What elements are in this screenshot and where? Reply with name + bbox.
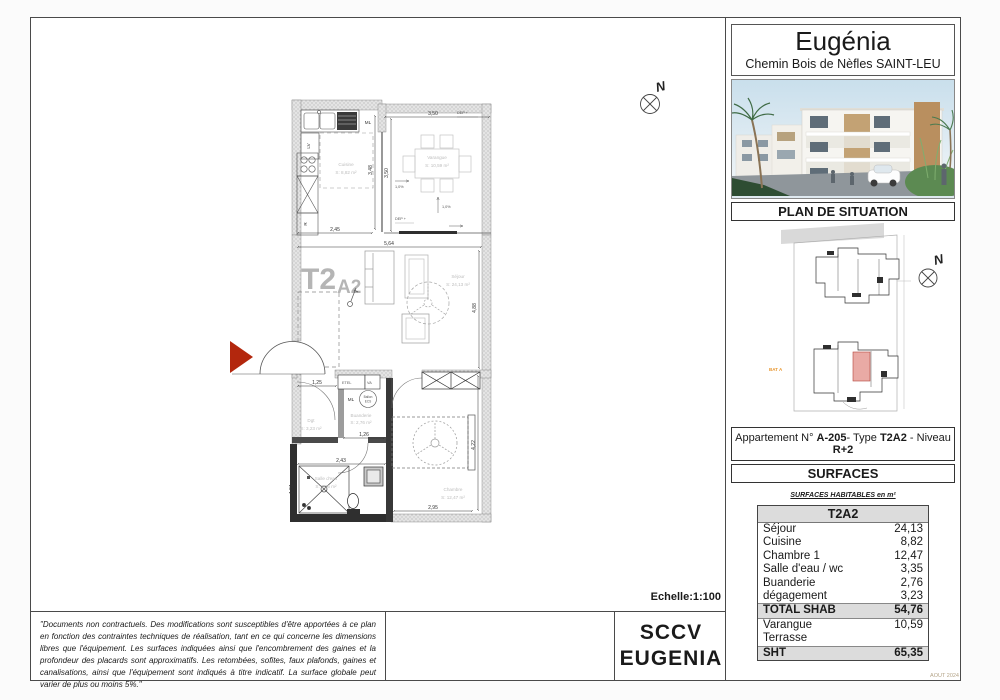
apt-type: T2A2 xyxy=(880,432,907,444)
surfaces-type-header: T2A2 xyxy=(758,506,928,523)
label-fridge: R xyxy=(303,222,308,226)
apartment-info-bar: Appartement N° A-205- Type T2A2 - Niveau… xyxy=(731,427,955,461)
label-ml-buanderie: ML xyxy=(348,397,355,402)
apt-level: R+2 xyxy=(833,444,854,456)
company-line2: EUGENIA xyxy=(620,646,723,672)
company-box: SCCV EUGENIA xyxy=(615,611,728,681)
plan-type-main: T2 xyxy=(301,263,336,296)
chambre: Chambre S: 12,47 m² xyxy=(392,372,480,500)
dgt-area: S: 3,23 m² xyxy=(300,426,322,431)
north-letter-site: N xyxy=(932,251,945,268)
table-row-sht: SHT65,35 xyxy=(758,646,928,660)
dep-top-label: DEP + xyxy=(457,111,469,115)
table-row: Varangue10,59 xyxy=(758,619,928,632)
salle-eau: Salle d'eau S: 3,35 m² xyxy=(299,443,383,516)
project-title: Eugénia xyxy=(732,26,954,57)
site-plan: BAT A N xyxy=(731,221,954,427)
north-arrow-main: N xyxy=(641,78,668,114)
label-ballon-2: ECS xyxy=(365,400,372,404)
dim-sde-w: 2,43 xyxy=(336,458,346,464)
table-row: Salle d'eau / wc3,35 xyxy=(758,563,928,576)
apt-mid2: - Niveau xyxy=(907,432,951,444)
buanderie-area: S: 2,76 m² xyxy=(350,420,372,425)
chambre-area: S: 12,47 m² xyxy=(441,495,465,500)
dim-chambre-w: 2,95 xyxy=(428,505,438,511)
dim-sejour-w: 5,64 xyxy=(384,241,394,247)
apt-number: A-205 xyxy=(817,432,847,444)
apt-prefix: Appartement N° xyxy=(735,432,816,444)
buanderie-name: Buanderie xyxy=(351,413,372,418)
bat-a-label: BAT A xyxy=(769,367,783,372)
dim-buand-w: 1,26 xyxy=(359,432,369,438)
label-etel: ETEL xyxy=(342,381,352,385)
kitchen-fixtures: ML LV R Cuisine S: 8,82 m² xyxy=(297,110,373,235)
table-row: Chambre 112,47 xyxy=(758,550,928,563)
company-line1: SCCV xyxy=(640,620,702,646)
label-ballon-1: Ballon xyxy=(364,395,373,399)
sde-name: Salle d'eau xyxy=(315,476,338,481)
date-note: AOUT 2024 xyxy=(930,673,959,679)
entrance xyxy=(230,341,325,374)
dim-sde-h: 1,51 xyxy=(289,484,295,494)
situation-heading: PLAN DE SITUATION xyxy=(731,202,955,221)
surfaces-table: T2A2 Séjour24,13 Cuisine8,82 Chambre 112… xyxy=(757,505,929,661)
dgt-name: Dgt xyxy=(307,418,315,423)
disclaimer-text: "Documents non contractuels. Des modific… xyxy=(40,620,376,689)
north-letter-main: N xyxy=(654,78,667,95)
table-row: Terrasse xyxy=(758,632,928,645)
apt-mid1: - Type xyxy=(847,432,880,444)
empty-title-box xyxy=(386,611,615,681)
varangue-area: S: 10,59 m² xyxy=(425,163,449,168)
site-plan-box: BAT A N xyxy=(731,221,955,427)
info-panel: Eugénia Chemin Bois de Nèfles SAINT-LEU xyxy=(725,18,960,680)
label-va: VA xyxy=(367,381,372,385)
sejour-name: Séjour xyxy=(451,274,465,279)
drawing-sheet: ML LV R Cuisine S: 8,82 m² Varangue S: 1… xyxy=(30,17,961,681)
label-ml-kitchen: ML xyxy=(365,120,372,125)
cuisine-name: Cuisine xyxy=(338,162,354,167)
dep-bottom-label: DEP + xyxy=(395,217,407,221)
varangue-name: Varangue xyxy=(427,155,447,160)
disclaimer-box: "Documents non contractuels. Des modific… xyxy=(30,611,386,681)
surfaces-table-title: SURFACES HABITABLES en m² xyxy=(726,492,960,499)
surfaces-table-area: SURFACES HABITABLES en m² T2A2 Séjour24,… xyxy=(726,483,960,680)
scale-label: Echelle:1:100 xyxy=(651,591,721,603)
title-block-row: "Documents non contractuels. Des modific… xyxy=(30,611,728,681)
highlighted-unit xyxy=(853,352,870,381)
sde-area: S: 3,35 m² xyxy=(315,484,337,489)
dim-var-h: 3,50 xyxy=(384,168,390,178)
table-row: dégagement3,23 xyxy=(758,590,928,603)
table-row: Buanderie2,76 xyxy=(758,577,928,590)
slope-label-a: 1,0% xyxy=(395,185,404,189)
table-row: Cuisine8,82 xyxy=(758,536,928,549)
dim-var-w: 3,50 xyxy=(428,111,438,117)
dim-chambre-h: 4,22 xyxy=(471,440,477,450)
project-title-box: Eugénia Chemin Bois de Nèfles SAINT-LEU xyxy=(731,24,955,76)
label-lv: LV xyxy=(306,142,311,148)
chambre-name: Chambre xyxy=(444,487,463,492)
table-row: Séjour24,13 xyxy=(758,523,928,536)
building-render xyxy=(732,80,954,196)
entry-arrow xyxy=(230,341,253,373)
floor-plan: ML LV R Cuisine S: 8,82 m² Varangue S: 1… xyxy=(31,18,728,612)
north-arrow-site: N xyxy=(919,251,945,287)
dim-kitchen-w: 2,45 xyxy=(330,227,340,233)
living-room: T2 A2 Séjour S: 24,13 m² xyxy=(298,251,470,367)
varangue-fixtures: Varangue S: 10,59 m² 1,0% 1,0% DEP + DEP… xyxy=(395,111,478,226)
building-render-box xyxy=(731,79,955,199)
plan-type-sub: A2 xyxy=(337,277,361,298)
cuisine-area: S: 8,82 m² xyxy=(335,170,357,175)
dim-kitchen-h: 3,48 xyxy=(368,165,374,175)
surfaces-heading: SURFACES xyxy=(731,464,955,483)
site-building-upper xyxy=(816,248,899,303)
slope-label-b: 1,0% xyxy=(442,205,451,209)
dim-dgt-w: 1,25 xyxy=(312,380,322,386)
sejour-area: S: 24,13 m² xyxy=(446,282,470,287)
dim-sejour-h: 4,88 xyxy=(472,303,478,313)
project-address: Chemin Bois de Nèfles SAINT-LEU xyxy=(732,57,954,71)
table-row-total-shab: TOTAL SHAB54,76 xyxy=(758,603,928,618)
site-building-lower xyxy=(814,342,898,409)
